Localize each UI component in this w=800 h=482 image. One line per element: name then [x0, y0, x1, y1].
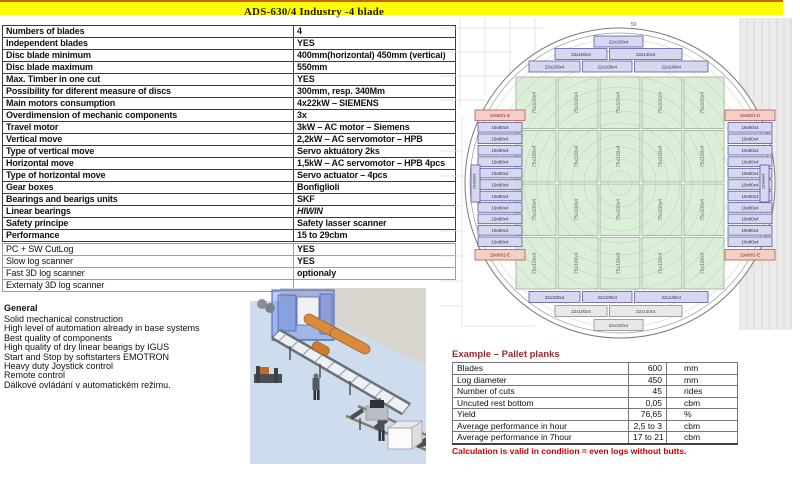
extra-value: YES [294, 256, 456, 268]
table-row: Log diameter450mm [453, 374, 738, 386]
table-row: Performance15 to 29cbm [3, 230, 456, 242]
svg-text:22x100x4: 22x100x4 [571, 52, 591, 57]
spec-value: SKF [294, 194, 456, 206]
svg-text:22x100x4: 22x100x4 [609, 323, 629, 328]
table-row: Blades600mm [453, 363, 738, 375]
example-unit: cbm [667, 420, 738, 432]
table-row: Linear bearingsHIWIN [3, 206, 456, 218]
svg-text:22x100x4: 22x100x4 [545, 64, 565, 69]
svg-text:22x100x4: 22x100x4 [571, 309, 591, 314]
table-row: Safety principeSafety lasser scanner [3, 218, 456, 230]
table-row: Possibility for diferent measure of disc… [3, 86, 456, 98]
spec-value: YES [294, 74, 456, 86]
extra-label: Slow log scanner [3, 256, 294, 268]
spec-label: Linear bearings [3, 206, 294, 218]
svg-text:22x140x4: 22x140x4 [661, 64, 681, 69]
svg-text:19x80x4: 19x80x4 [491, 148, 509, 153]
spec-value: 15 to 29cbm [294, 230, 456, 242]
spec-value: 400mm(horizontal) 450mm (vertical) [294, 50, 456, 62]
svg-text:75x100x4: 75x100x4 [700, 252, 706, 274]
table-row: Uncuted rest bottom0,05cbm [453, 397, 738, 409]
example-label: Blades [453, 363, 629, 375]
svg-text:19x80/1-E: 19x80/1-E [740, 113, 761, 118]
spec-value: YES [294, 38, 456, 50]
spec-value: Servo aktuátory 2ks [294, 146, 456, 158]
table-row: PC + SW CutLogYES [3, 244, 456, 256]
example-unit: cbm [667, 397, 738, 409]
svg-text:19x80x4: 19x80x4 [741, 194, 759, 199]
svg-text:19x80x4: 19x80x4 [741, 137, 759, 142]
svg-text:19x80x4: 19x80x4 [741, 240, 759, 245]
svg-text:75x100x4: 75x100x4 [532, 199, 538, 221]
right-rotated-box: 19x80x4 [760, 165, 769, 202]
svg-text:22x100x4: 22x100x4 [545, 295, 565, 300]
svg-text:75x100x4: 75x100x4 [532, 252, 538, 274]
spec-label: Gear boxes [3, 182, 294, 194]
svg-text:22x100x4: 22x100x4 [597, 64, 617, 69]
svg-text:75x100x4: 75x100x4 [700, 145, 706, 167]
svg-text:75x100x4: 75x100x4 [574, 145, 580, 167]
table-row: Slow log scannerYES [3, 256, 456, 268]
example-label: Average performance in hour [453, 420, 629, 432]
svg-text:75x100x4: 75x100x4 [658, 145, 664, 167]
example-label: Uncuted rest bottom [453, 397, 629, 409]
table-row: Yield76,65% [453, 409, 738, 421]
table-row: Average performance in 7hour17 to 21cbm [453, 432, 738, 444]
spec-label: Possibility for diferent measure of disc… [3, 86, 294, 98]
svg-text:75x100x4: 75x100x4 [574, 92, 580, 114]
table-row: Horizontal move1,5kW – AC servomotor – H… [3, 158, 456, 170]
spec-value: Bonfiglioli [294, 182, 456, 194]
example-table: Blades600mmLog diameter450mmNumber of cu… [452, 362, 738, 445]
svg-text:19x80x4: 19x80x4 [741, 125, 759, 130]
example-value: 0,05 [629, 397, 667, 409]
table-row: Disc blade maximum550mm [3, 62, 456, 74]
svg-text:22x100x4: 22x100x4 [609, 39, 629, 44]
example-label: Number of cuts [453, 386, 629, 398]
svg-text:19x80x4: 19x80x4 [491, 159, 509, 164]
spec-label: Bearings and bearigs units [3, 194, 294, 206]
general-line: Dálkové ovládání v automatickém režimu. [4, 381, 244, 390]
table-row: Overdimension of mechanic components3x [3, 110, 456, 122]
svg-text:75x100x4: 75x100x4 [700, 92, 706, 114]
svg-text:75x100x4: 75x100x4 [700, 199, 706, 221]
spec-label: Disc blade minimum [3, 50, 294, 62]
left-plank-column: 19x80/1-E19x80x419x80x419x80x419x80x419x… [475, 110, 525, 260]
svg-text:75x100x4: 75x100x4 [658, 199, 664, 221]
svg-text:75x100x4: 75x100x4 [616, 252, 622, 274]
example-label: Log diameter [453, 374, 629, 386]
table-row: Bearings and bearigs unitsSKF [3, 194, 456, 206]
document-title-bar: ADS-630/4 Industry -4 blade [0, 0, 783, 15]
spec-value: 3x [294, 110, 456, 122]
svg-text:19x80x4: 19x80x4 [491, 228, 509, 233]
spec-label: Max. Timber in one cut [3, 74, 294, 86]
page-title: ADS-630/4 Industry -4 blade [244, 6, 384, 18]
calculation-note: Calculation is valid in condition = even… [452, 446, 782, 456]
svg-text:22x140x4: 22x140x4 [636, 52, 656, 57]
example-title: Example – Pallet planks [452, 349, 738, 360]
spec-label: Safety principe [3, 218, 294, 230]
spec-value: Servo actuator – 4pcs [294, 170, 456, 182]
svg-text:19x80x4: 19x80x4 [741, 228, 759, 233]
svg-text:19x80x4: 19x80x4 [741, 205, 759, 210]
example-value: 17 to 21 [629, 432, 667, 444]
spec-label: Independent blades [3, 38, 294, 50]
spec-value: HIWIN [294, 206, 456, 218]
cutting-pattern-diagram: 75x100x475x100x475x100x475x100x475x100x4… [440, 16, 800, 360]
spec-label: Numbers of blades [3, 26, 294, 38]
svg-text:19x80x4: 19x80x4 [491, 205, 509, 210]
spec-label: Main motors consumption [3, 98, 294, 110]
extra-label: Fast 3D log scanner [3, 268, 294, 280]
extra-value: optionaly [294, 268, 456, 280]
spec-value: 550mm [294, 62, 456, 74]
spec-label: Type of vertical move [3, 146, 294, 158]
svg-text:75x100x4: 75x100x4 [574, 199, 580, 221]
spec-label: Type of horizontal move [3, 170, 294, 182]
example-value: 2,5 to 3 [629, 420, 667, 432]
spec-value: 3kW – AC motor – Siemens [294, 122, 456, 134]
table-row: Type of vertical moveServo aktuátory 2ks [3, 146, 456, 158]
general-heading: General [4, 303, 244, 313]
example-unit: % [667, 409, 738, 421]
svg-text:75x100x4: 75x100x4 [616, 145, 622, 167]
spec-table: Numbers of blades4Independent bladesYESD… [2, 25, 456, 242]
machine-illustration-svg [250, 288, 426, 464]
svg-text:19x80x4: 19x80x4 [491, 240, 509, 245]
svg-text:75x100x4: 75x100x4 [532, 145, 538, 167]
table-row: Main motors consumption4x22kW – SIEMENS [3, 98, 456, 110]
svg-text:19x80x4: 19x80x4 [472, 173, 477, 189]
spec-label: Overdimension of mechanic components [3, 110, 294, 122]
svg-text:22x100x4: 22x100x4 [597, 295, 617, 300]
svg-text:75x100x4: 75x100x4 [532, 92, 538, 114]
svg-text:22x140x4: 22x140x4 [636, 309, 656, 314]
example-label: Yield [453, 409, 629, 421]
svg-text:19x80x4: 19x80x4 [491, 182, 509, 187]
example-label: Average performance in 7hour [453, 432, 629, 444]
spec-value: Safety lasser scanner [294, 218, 456, 230]
table-row: Type of horizontal moveServo actuator – … [3, 170, 456, 182]
table-row: Vertical move2,2kW – AC servomotor – HPB [3, 134, 456, 146]
spec-label: Horizontal move [3, 158, 294, 170]
example-value: 76,65 [629, 409, 667, 421]
svg-text:19x80x4: 19x80x4 [741, 182, 759, 187]
example-value: 450 [629, 374, 667, 386]
example-value: 45 [629, 386, 667, 398]
spec-label: Travel motor [3, 122, 294, 134]
spec-value: 4 [294, 26, 456, 38]
table-row: Disc blade minimum400mm(horizontal) 450m… [3, 50, 456, 62]
extras-table: PC + SW CutLogYESSlow log scannerYESFast… [2, 243, 456, 292]
example-section: Example – Pallet planks Blades600mmLog d… [452, 349, 738, 445]
svg-text:19x80x4: 19x80x4 [491, 125, 509, 130]
table-row: Average performance in hour2,5 to 3cbm [453, 420, 738, 432]
svg-text:75x100x4: 75x100x4 [616, 92, 622, 114]
svg-text:75x100x4: 75x100x4 [616, 199, 622, 221]
spec-value: 300mm, resp. 340Mm [294, 86, 456, 98]
svg-text:19x80x4: 19x80x4 [491, 217, 509, 222]
svg-text:19x80x4: 19x80x4 [491, 194, 509, 199]
spec-label: Vertical move [3, 134, 294, 146]
svg-text:22x140x4: 22x140x4 [661, 295, 681, 300]
spec-label: Disc blade maximum [3, 62, 294, 74]
svg-text:19x80x4: 19x80x4 [741, 148, 759, 153]
svg-text:19x80x4: 19x80x4 [761, 173, 766, 189]
left-rotated-box: 19x80x4 [471, 165, 480, 202]
svg-text:19x80x4: 19x80x4 [741, 159, 759, 164]
svg-text:19x80/1-E: 19x80/1-E [490, 113, 511, 118]
general-section: General Solid mechanical constructionHig… [4, 303, 244, 390]
machine-illustration [250, 288, 426, 464]
svg-text:19x80x4: 19x80x4 [741, 171, 759, 176]
extra-label: PC + SW CutLog [3, 244, 294, 256]
table-row: Independent bladesYES [3, 38, 456, 50]
spec-label: Performance [3, 230, 294, 242]
log-deck-machine [254, 366, 282, 383]
example-unit: cbm [667, 432, 738, 444]
table-row: Numbers of blades4 [3, 26, 456, 38]
example-unit: mm [667, 363, 738, 375]
table-row: Gear boxesBonfiglioli [3, 182, 456, 194]
svg-text:19x80x4: 19x80x4 [491, 137, 509, 142]
spec-value: 1,5kW – AC servomotor – HPB 4pcs [294, 158, 456, 170]
table-row: Number of cuts45rides [453, 386, 738, 398]
table-row: Travel motor3kW – AC motor – Siemens [3, 122, 456, 134]
svg-text:19x80/1-E: 19x80/1-E [740, 253, 761, 258]
spec-value: 2,2kW – AC servomotor – HPB [294, 134, 456, 146]
example-unit: rides [667, 386, 738, 398]
example-value: 600 [629, 363, 667, 375]
extra-value: YES [294, 244, 456, 256]
dimension-label: 50 [631, 22, 637, 28]
example-unit: mm [667, 374, 738, 386]
svg-text:19x80x4: 19x80x4 [741, 217, 759, 222]
svg-text:19x80x4: 19x80x4 [491, 171, 509, 176]
table-row: Fast 3D log scanneroptionaly [3, 268, 456, 280]
svg-text:19x80/1-E: 19x80/1-E [490, 253, 511, 258]
spec-value: 4x22kW – SIEMENS [294, 98, 456, 110]
table-row: Max. Timber in one cutYES [3, 74, 456, 86]
